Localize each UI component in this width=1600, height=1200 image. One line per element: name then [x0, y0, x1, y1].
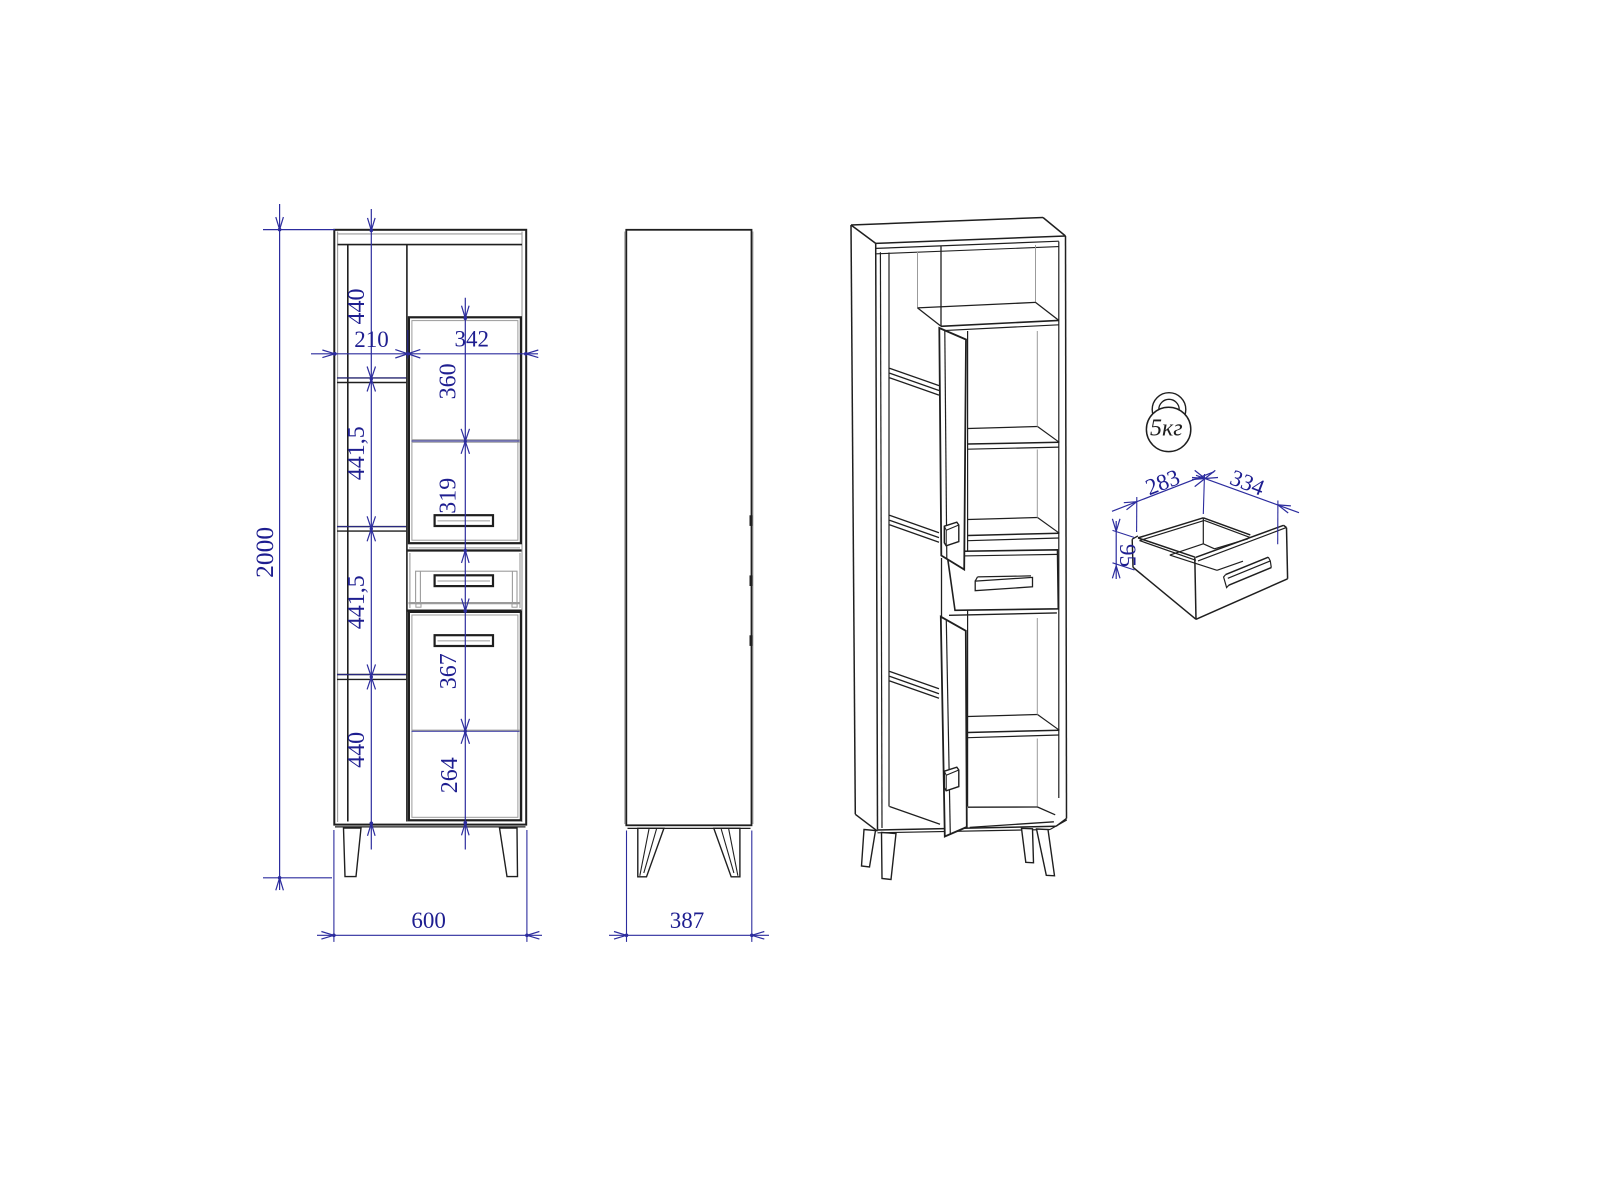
svg-text:440: 440 — [344, 732, 370, 768]
svg-text:210: 210 — [354, 327, 389, 352]
svg-text:387: 387 — [670, 908, 705, 933]
svg-text:440: 440 — [344, 289, 370, 325]
svg-text:5кг: 5кг — [1150, 416, 1183, 442]
svg-text:264: 264 — [437, 757, 463, 793]
svg-text:95: 95 — [1115, 544, 1140, 567]
svg-text:367: 367 — [436, 653, 462, 689]
svg-text:441,5: 441,5 — [344, 575, 370, 629]
svg-text:600: 600 — [411, 908, 446, 933]
svg-text:2000: 2000 — [250, 527, 279, 578]
svg-text:360: 360 — [435, 363, 461, 399]
svg-text:441,5: 441,5 — [344, 426, 370, 480]
svg-text:342: 342 — [455, 327, 490, 352]
svg-text:319: 319 — [435, 478, 461, 514]
